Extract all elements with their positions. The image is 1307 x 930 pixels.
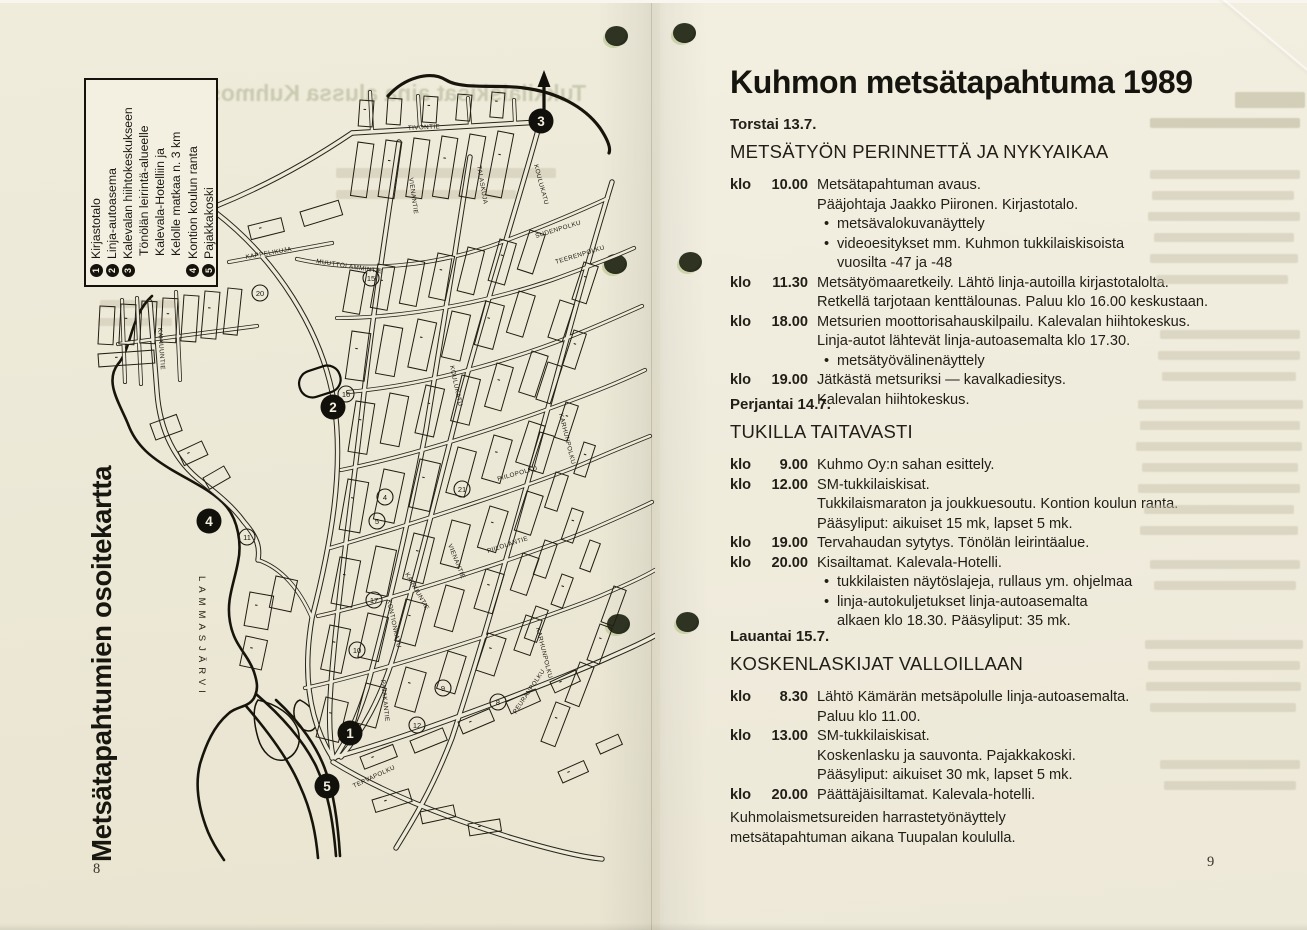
event-row: klo19.00Tervahaudan sytytys. Tönölän lei…: [730, 534, 1235, 554]
legend-row: Tönölän leirintä-alueelle: [136, 78, 152, 277]
svg-text:1: 1: [346, 726, 354, 741]
time-prefix: klo: [730, 688, 751, 727]
legend-label: Kalevalan hiihtokeskukseen: [120, 107, 136, 259]
event-line: videoesitykset mm. Kuhmon tukkilaiskisoi…: [817, 235, 1124, 255]
footer-line: metsätapahtuman aikana Tuupalan koululla…: [730, 828, 1016, 848]
ghost-bleedthrough-line: [1148, 212, 1300, 221]
binder-hole: [676, 612, 699, 632]
time-prefix: klo: [730, 554, 751, 632]
event-line: Retkellä tarjotaan kenttälounas. Paluu k…: [817, 293, 1208, 313]
ghost-bleedthrough-line: [1150, 118, 1300, 128]
legend-label: Kalevala-Hotelliin ja: [152, 148, 168, 256]
time-prefix: klo: [730, 786, 751, 806]
legend-row: 5Pajakkakoski: [201, 78, 217, 277]
event-line: SM-tukkilaiskisat.: [817, 727, 1076, 747]
binder-hole: [679, 252, 702, 272]
event-line: Pääjohtaja Jaakko Piironen. Kirjastotalo…: [817, 196, 1124, 216]
map-marker-1: 1: [338, 721, 363, 746]
map-marker-4: 4: [197, 509, 222, 534]
ghost-bleedthrough-line: [1156, 275, 1288, 284]
ghost-bleedthrough-line: [1148, 661, 1300, 670]
event-line: Kuhmo Oy:n sahan esittely.: [817, 456, 994, 476]
footer-line: Kuhmolaismetsureiden harrastetyönäyttely: [730, 808, 1016, 828]
map-legend: 1Kirjastotalo2Linja-autoasema3Kalevalan …: [84, 78, 218, 287]
street-label: PEURANPOLKU: [512, 668, 547, 715]
map-marker-5: 5: [315, 774, 340, 799]
event-line: Metsätapahtuman avaus.: [817, 176, 1124, 196]
ghost-bleedthrough-line: [1160, 760, 1300, 769]
legend-row: 2Linja-autoasema: [104, 78, 120, 277]
ghost-bleedthrough-line: [1235, 92, 1305, 108]
event-time: 20.00: [771, 554, 808, 632]
time-prefix: klo: [730, 456, 751, 476]
svg-text:9: 9: [441, 684, 445, 693]
svg-text:17: 17: [370, 596, 378, 605]
ghost-bleedthrough-line: [1140, 526, 1298, 535]
legend-label: Linja-autoasema: [104, 168, 120, 259]
legend-label: Kirjastotalo: [88, 198, 104, 259]
street-label: KOULUKATU: [532, 164, 550, 206]
event-line: Metsätyömaaretkeily. Lähtö linja-autoill…: [817, 274, 1208, 294]
event-row: klo20.00Päättäjäisiltamat. Kalevala-hote…: [730, 786, 1235, 806]
map-markers: 1 2 3 4 5: [197, 70, 554, 799]
ghost-bleedthrough-line: [1150, 560, 1300, 569]
ghost-bleedthrough-line: [1144, 505, 1294, 514]
event-line: Jätkästä metsuriksi — kavalkadiesitys.: [817, 371, 1066, 391]
event-line: Pääsyliput: aikuiset 15 mk, lapset 5 mk.: [817, 515, 1178, 535]
event-line: metsävalokuvanäyttely: [817, 215, 1124, 235]
svg-text:2: 2: [329, 400, 337, 415]
day-block: Torstai 13.7.METSÄTYÖN PERINNETTÄ JA NYK…: [730, 116, 1235, 410]
legend-row: Kelolle matkaa n. 3 km: [168, 78, 184, 277]
map-street-labels: TIVONTIE KOULUKATU VIENANTIE TALASKUJA K…: [156, 123, 606, 789]
ghost-bleedthrough-line: [1160, 330, 1300, 339]
svg-text:5: 5: [323, 779, 331, 794]
svg-text:4: 4: [205, 514, 213, 529]
event-line: Pääsyliput: aikuiset 30 mk, lapset 5 mk.: [817, 766, 1076, 786]
event-line: vuosilta -47 ja -48: [817, 254, 1124, 274]
event-line: Kisailtamat. Kalevala-Hotelli.: [817, 554, 1132, 574]
legend-number-badge: 3: [122, 264, 135, 277]
legend-label: Pajakkakoski: [201, 187, 217, 259]
svg-text:8: 8: [496, 698, 500, 707]
event-time: 19.00: [771, 534, 808, 554]
time-prefix: klo: [730, 274, 751, 313]
svg-text:11: 11: [243, 533, 251, 542]
legend-row: 4Kontion koulun ranta: [185, 78, 201, 277]
legend-number-badge: 5: [202, 264, 215, 277]
street-label: SUDENPOLKU: [535, 219, 582, 240]
event-line: Lähtö Kämärän metsäpolulle linja-autoase…: [817, 688, 1129, 708]
event-time: 11.30: [772, 274, 808, 313]
scan-bottom-edge: [0, 923, 1307, 930]
event-line: metsätyövälinenäyttely: [817, 352, 1190, 372]
footer-block: Kuhmolaismetsureiden harrastetyönäyttely…: [730, 808, 1016, 848]
ghost-bleedthrough-line: [1154, 581, 1296, 590]
event-time: 13.00: [771, 727, 808, 786]
ghost-bleedthrough-line: [1138, 400, 1303, 409]
ghost-bleedthrough-line: [1146, 682, 1301, 691]
ghost-bleedthrough-line: [1154, 233, 1294, 242]
time-prefix: klo: [730, 534, 751, 554]
ghost-bleedthrough-line: [1152, 191, 1294, 200]
bus-station-loop: [296, 362, 344, 401]
time-prefix: klo: [730, 727, 751, 786]
event-row: klo18.00Metsurien moottorisahauskilpailu…: [730, 313, 1235, 372]
ghost-bleedthrough-line: [1164, 781, 1296, 790]
ghost-bleedthrough-line: [1140, 421, 1300, 430]
event-time: 8.30: [780, 688, 808, 727]
event-line: Päättäjäisiltamat. Kalevala-hotelli.: [817, 786, 1035, 806]
event-time: 10.00: [771, 176, 808, 274]
legend-number-badge: 1: [90, 264, 103, 277]
ghost-bleedthrough-line: [1150, 254, 1298, 263]
time-prefix: klo: [730, 176, 751, 274]
ghost-bleedthrough-line: [1162, 372, 1296, 381]
binder-hole: [673, 23, 696, 43]
ghost-bleedthrough-line: [1158, 351, 1300, 360]
binder-hole: [605, 26, 628, 46]
event-line: Linja-autot lähtevät linja-autoasemalta …: [817, 332, 1190, 352]
event-time: 9.00: [780, 456, 808, 476]
paper-crease: [1215, 0, 1307, 90]
event-line: SM-tukkilaiskisat.: [817, 476, 1178, 496]
svg-text:16: 16: [342, 390, 350, 399]
day-block: Lauantai 15.7.KOSKENLASKIJAT VALLOILLAAN…: [730, 628, 1235, 805]
svg-text:10: 10: [353, 646, 361, 655]
ghost-bleedthrough-line: [1150, 170, 1300, 179]
event-line: Paluu klo 11.00.: [817, 708, 1129, 728]
day-heading: METSÄTYÖN PERINNETTÄ JA NYKYAIKAA: [730, 141, 1235, 163]
event-line: Metsurien moottorisahauskilpailu. Kaleva…: [817, 313, 1190, 333]
event-time: 12.00: [771, 476, 808, 535]
event-line: Tukkilaismaraton ja joukkuesoutu. Kontio…: [817, 495, 1178, 515]
event-line: tukkilaisten näytöslajeja, rullaus ym. o…: [817, 573, 1132, 593]
svg-text:15: 15: [367, 274, 375, 283]
ghost-bleedthrough-line: [1150, 703, 1296, 712]
page-title: Kuhmon metsätapahtuma 1989: [730, 64, 1193, 101]
svg-text:5: 5: [375, 517, 379, 526]
event-row: klo13.00SM-tukkilaiskisat.Koskenlasku ja…: [730, 727, 1235, 786]
legend-label: Kontion koulun ranta: [185, 146, 201, 259]
time-prefix: klo: [730, 313, 751, 372]
north-arrow-head: [538, 70, 551, 87]
svg-text:12: 12: [413, 721, 421, 730]
legend-row: 3Kalevalan hiihtokeskukseen: [120, 78, 136, 277]
map-marker-3: 3: [529, 109, 554, 134]
street-label: VIENANTIE: [446, 543, 466, 580]
map-marker-2: 2: [321, 395, 346, 420]
ghost-bleedthrough-line: [1136, 442, 1302, 451]
ghost-bleedthrough-line: [1145, 640, 1303, 649]
svg-text:21: 21: [458, 485, 466, 494]
svg-text:20: 20: [256, 289, 264, 298]
ghost-bleedthrough-line: [1142, 463, 1298, 472]
street-label: VIENANTIE: [407, 177, 419, 214]
event-line: linja-autokuljetukset linja-autoasemalta: [817, 593, 1132, 613]
scan-top-edge: [0, 0, 1307, 3]
svg-text:4: 4: [383, 493, 387, 502]
event-time: 20.00: [771, 786, 808, 806]
event-time: 18.00: [771, 313, 808, 372]
legend-row: Kalevala-Hotelliin ja: [152, 78, 168, 277]
page-number-right: 9: [1207, 854, 1214, 871]
legend-number-badge: 4: [186, 264, 199, 277]
legend-number-badge: 2: [106, 264, 119, 277]
svg-text:3: 3: [537, 114, 545, 129]
street-label: PAJAKANTIE: [379, 679, 390, 722]
time-prefix: klo: [730, 476, 751, 535]
event-line: Tervahaudan sytytys. Tönölän leirintäalu…: [817, 534, 1089, 554]
legend-label: Tönölän leirintä-alueelle: [136, 125, 152, 256]
legend-row: 1Kirjastotalo: [88, 78, 104, 277]
event-line: Koskenlasku ja sauvonta. Pajakkakoski.: [817, 747, 1076, 767]
scanned-brochure-spread: Tukkilaiskisat aina alussa Kuhmossa: [0, 0, 1307, 930]
legend-rows: 1Kirjastotalo2Linja-autoasema3Kalevalan …: [86, 78, 216, 283]
ghost-bleedthrough-line: [1138, 484, 1300, 493]
lake-label: LAMMASJÄRVI: [196, 576, 207, 698]
legend-label: Kelolle matkaa n. 3 km: [168, 132, 184, 256]
